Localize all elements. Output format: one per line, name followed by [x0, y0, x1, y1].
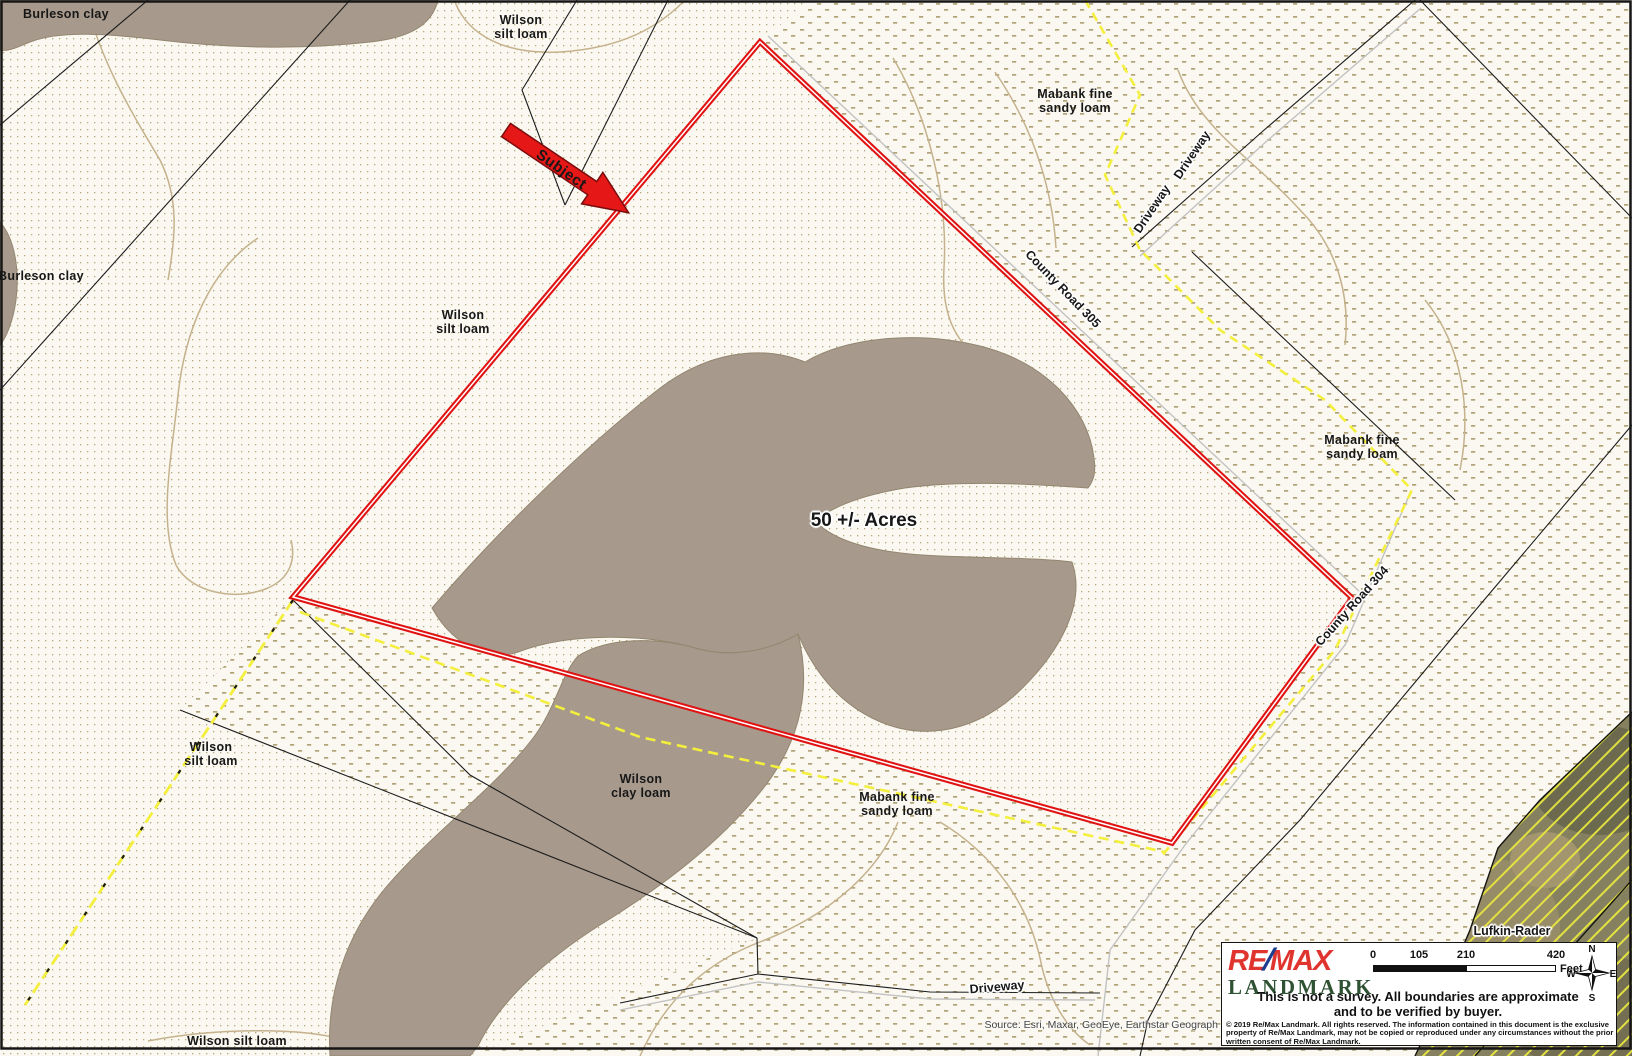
scale-tick-420: 420	[1547, 949, 1565, 961]
copyright-text: © 2019 Re/Max Landmark. All rights reser…	[1226, 1021, 1614, 1046]
soil-parcel-map: Burleson clayWilsonsilt loamMabank fines…	[0, 0, 1632, 1056]
label-mabank-fine-sandy-loam-south: Mabank finesandy loam	[859, 790, 935, 818]
compass-e: E	[1610, 969, 1617, 980]
label-burleson-clay-left: Burleson clay	[0, 269, 84, 283]
compass-n: N	[1588, 944, 1595, 955]
scale-tick-105: 105	[1410, 949, 1428, 961]
compass-s: S	[1589, 993, 1596, 1004]
source-credit: Source: Esri, Maxar, GeoEye, Earthstar G…	[985, 1019, 1218, 1031]
scale-tick-0: 0	[1370, 949, 1376, 961]
label-wilson-silt-loam-top: Wilsonsilt loam	[494, 13, 547, 41]
label-driveway-south: Driveway	[969, 978, 1025, 997]
map-labels: Burleson clayWilsonsilt loamMabank fines…	[0, 0, 1632, 1056]
label-county-road-304: County Road 304	[1313, 563, 1392, 648]
scale-bar-filled	[1373, 965, 1466, 972]
label-subject: Subject	[533, 148, 588, 193]
label-driveway-ne-2: Driveway	[1171, 128, 1213, 181]
label-burleson-clay-top: Burleson clay	[23, 7, 109, 21]
label-lufkin-rader: Lufkin-Rader	[1473, 924, 1550, 938]
scale-bar-empty	[1466, 965, 1556, 972]
label-wilson-silt-loam-sw: Wilsonsilt loam	[184, 740, 237, 768]
scale-tick-210: 210	[1457, 949, 1475, 961]
label-wilson-silt-loam-bottom: Wilson silt loam	[187, 1034, 287, 1048]
label-mabank-fine-sandy-loam-right: Mabank finesandy loam	[1324, 433, 1400, 461]
legend-box: RE/MAX LANDMARK 0 105 210 420 Feet N E S	[1221, 942, 1617, 1046]
label-driveway-ne-1: Driveway	[1131, 182, 1173, 235]
label-mabank-fine-sandy-loam-top: Mabank finesandy loam	[1037, 87, 1113, 115]
label-wilson-silt-loam-mid: Wilsonsilt loam	[436, 308, 489, 336]
remax-wordmark: RE/MAX	[1228, 944, 1374, 976]
label-acreage: 50 +/- Acres	[811, 511, 918, 531]
survey-disclaimer: This is not a survey. All boundaries are…	[1250, 989, 1586, 1019]
label-county-road-305: County Road 305	[1022, 247, 1103, 330]
label-wilson-clay-loam: Wilsonclay loam	[611, 772, 671, 800]
compass-w: W	[1567, 969, 1576, 980]
